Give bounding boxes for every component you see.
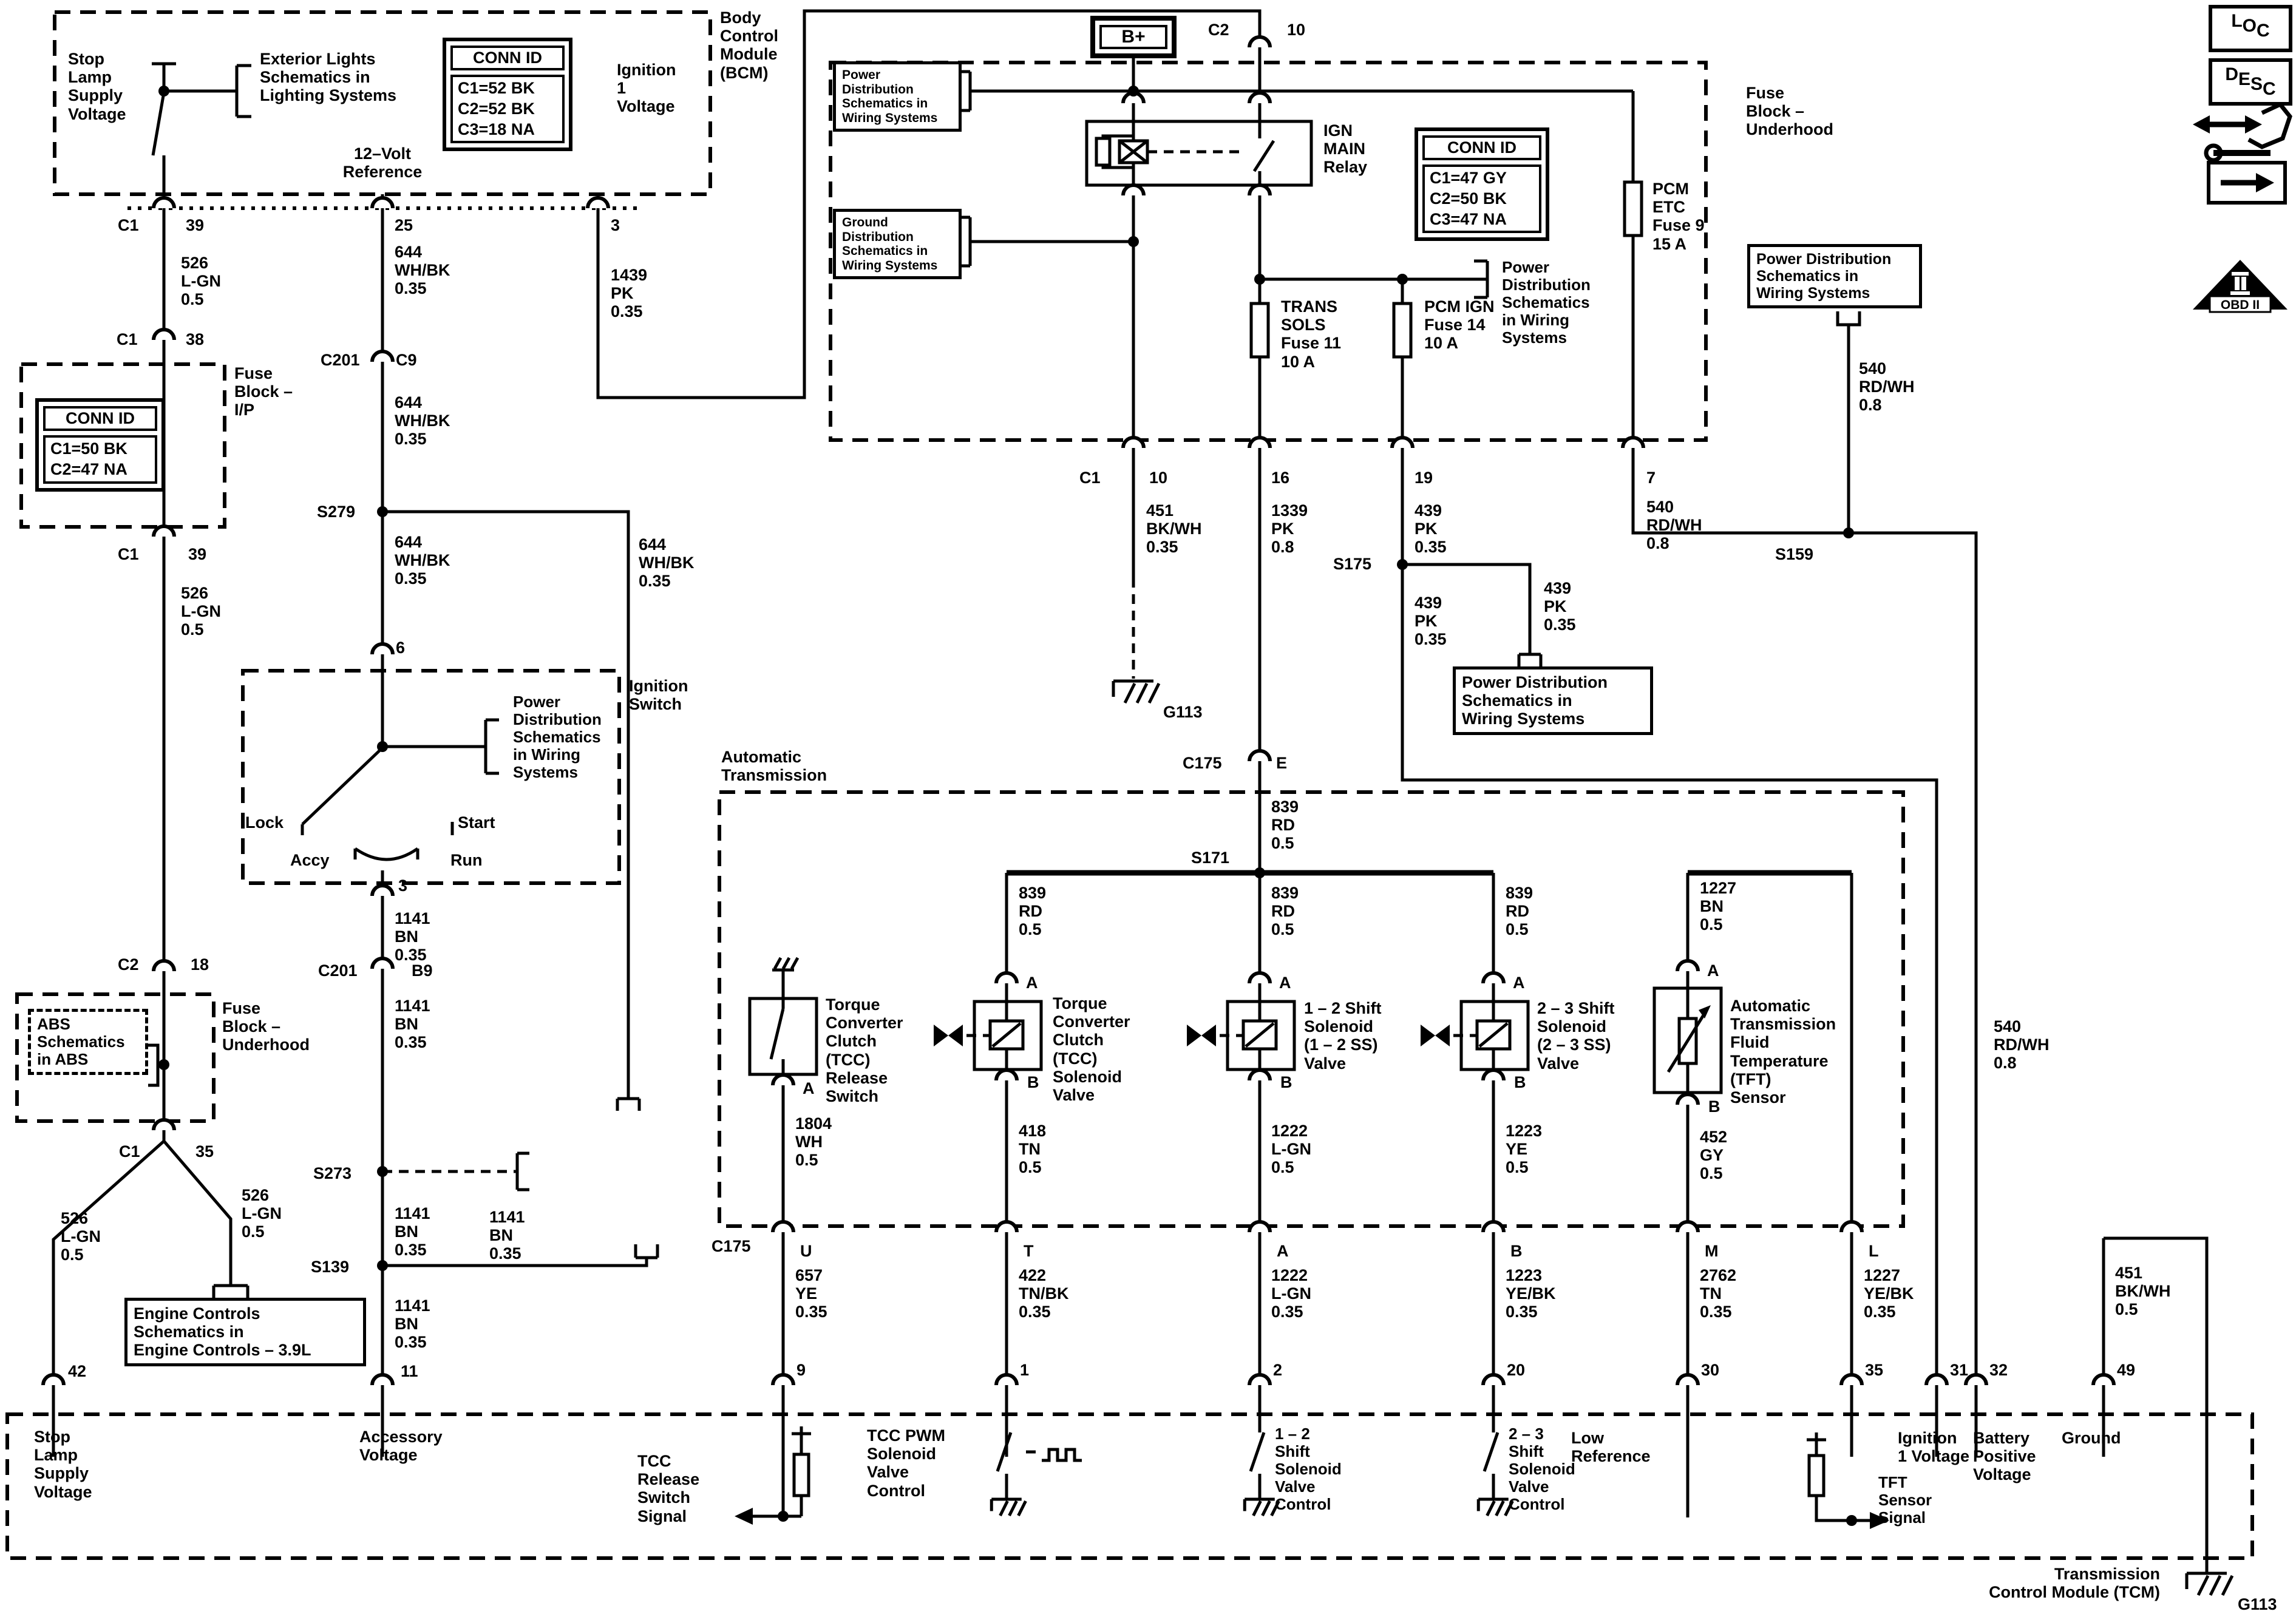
connector-bump	[372, 958, 393, 969]
obd2-icon[interactable]: OBD II	[2193, 260, 2288, 312]
ign-run: Run	[450, 851, 482, 869]
wire-2762: 2762 TN 0.35	[1700, 1266, 1736, 1321]
stop-lamp-supply-tcm: Stop Lamp Supply Voltage	[34, 1428, 92, 1501]
connector-bump	[1677, 1222, 1698, 1232]
splice-s279: S279	[317, 503, 355, 521]
connector-bump	[1677, 961, 1698, 971]
ign-start: Start	[458, 813, 495, 832]
wire-526-d: 526 L-GN 0.5	[242, 1186, 282, 1241]
tcm-resistor-1	[794, 1454, 809, 1496]
conn-id-bcm-rows: C1=52 BK C2=52 BK C3=18 NA	[450, 75, 565, 143]
tcc-signal-arrow	[735, 1508, 753, 1525]
wire-1222-b: 1222 L-GN 0.35	[1271, 1266, 1311, 1321]
pd-ref-s175: Power Distribution Schematics in Wiring …	[1453, 666, 1653, 735]
tcc-release-switch: Torque Converter Clutch (TCC) Release Sw…	[826, 995, 903, 1105]
wire-526-b: 526 L-GN 0.5	[181, 584, 221, 639]
shift-23-valve: 2 – 3 Shift Solenoid (2 – 3 SS) Valve	[1537, 999, 1615, 1073]
connector-bump	[1841, 1222, 1862, 1232]
automatic-transmission: Automatic Transmission	[721, 748, 827, 784]
bplus-label: B+	[1121, 27, 1145, 47]
stop-lamp-supply-bcm: Stop Lamp Supply Voltage	[68, 50, 126, 123]
pin-b9: B9	[412, 961, 433, 980]
wiring-diagram: OBD II B+ LOC DESC Body Control Module (…	[0, 0, 2296, 1617]
splice-dot	[778, 1511, 789, 1522]
wire-839-a: 839 RD 0.5	[1271, 798, 1299, 853]
pin-e: E	[1276, 754, 1287, 772]
conn-id-ip-title: CONN ID	[43, 406, 157, 431]
wire-540-c: 540 RD/WH 0.8	[1994, 1017, 2049, 1073]
ground-symbol	[991, 1499, 1025, 1516]
trans-sols-fuse: TRANS SOLS Fuse 11 10 A	[1281, 297, 1341, 371]
ign-main-relay: IGN MAIN Relay	[1323, 121, 1367, 177]
connector-bump	[372, 1375, 393, 1385]
pin-38: 38	[186, 330, 204, 348]
splice-dot	[377, 1260, 388, 1271]
pin-25: 25	[395, 216, 413, 234]
splice-s171: S171	[1191, 849, 1229, 867]
ignition-power-circuit	[598, 11, 1976, 1457]
wire-1339: 1339 PK 0.8	[1271, 501, 1308, 557]
wire-439-b: 439 PK 0.35	[1415, 594, 1447, 649]
conn-id-ip: CONN IDC1=50 BK C2=47 NA	[35, 398, 165, 492]
abs-ref: ABS Schematics in ABS	[28, 1009, 148, 1075]
wire-1141-c: 1141 BN 0.35	[395, 1204, 430, 1259]
wire-1223-b: 1223 YE/BK 0.35	[1506, 1266, 1556, 1321]
conn-id-ip-rows: C1=50 BK C2=47 NA	[43, 435, 157, 484]
connector-bump	[1249, 185, 1270, 195]
pin-42: 42	[68, 1362, 86, 1380]
splice-s273: S273	[313, 1164, 352, 1182]
tft-sensor-signal: TFT Sensor Signal	[1878, 1474, 1932, 1527]
connector-bump	[154, 1120, 174, 1130]
pin-7: 7	[1646, 469, 1656, 487]
arrow-icon[interactable]	[2209, 163, 2285, 203]
connector-bump	[372, 886, 393, 896]
pin-a-bot: A	[1277, 1242, 1289, 1260]
connector-bump	[1483, 1222, 1504, 1232]
pin-11: 11	[401, 1362, 418, 1380]
fuse-block-underhood-big: Fuse Block – Underhood	[1746, 84, 1833, 139]
connector-bump	[1483, 973, 1504, 983]
pin-c1-10: C1	[1079, 469, 1101, 487]
connector-bump	[996, 1222, 1017, 1232]
wire-418: 418 TN 0.5	[1019, 1122, 1046, 1177]
wire-657: 657 YE 0.35	[795, 1266, 827, 1321]
conn-id-underhood: CONN IDC1=47 GY C2=50 BK C3=47 NA	[1415, 127, 1549, 241]
pin-c1-39b: C1	[118, 545, 139, 563]
pin-3-ign: 3	[398, 876, 407, 895]
pcm-etc-fuse-symbol	[1625, 182, 1642, 236]
exterior-lights-ref: Exterior Lights Schematics in Lighting S…	[260, 50, 396, 105]
low-reference: Low Reference	[1571, 1429, 1651, 1465]
pin-c9: C9	[396, 351, 417, 369]
connector-bump	[1677, 1375, 1698, 1385]
pin-c1-top: C1	[118, 216, 139, 234]
pcm-ign-fuse: PCM IGN Fuse 14 10 A	[1424, 297, 1495, 353]
connector-bump	[773, 1075, 793, 1085]
connector-bump	[1249, 37, 1270, 47]
pin-c2-18: C2	[118, 955, 139, 974]
ignition-1-voltage-tcm: Ignition 1 Voltage	[1898, 1429, 1969, 1465]
splice-s159: S159	[1775, 545, 1813, 563]
ground-g113-a: G113	[1163, 703, 1203, 721]
ground-g113-b: G113	[2238, 1595, 2277, 1613]
splice-dot	[1846, 1515, 1857, 1526]
connector-bump	[154, 330, 174, 340]
pd-ref-s159: Power Distribution Schematics in Wiring …	[1747, 244, 1922, 308]
ignition-switch-title: Ignition Switch	[629, 677, 688, 713]
splice-dot	[1843, 527, 1854, 538]
connector-bump	[372, 644, 393, 654]
ign-lock: Lock	[245, 813, 284, 832]
ground-tcm: Ground	[2062, 1429, 2121, 1447]
connector-bump	[1841, 1375, 1862, 1385]
pin-10-b: 10	[1149, 469, 1167, 487]
tcm-pin-31: 31	[1950, 1361, 1968, 1379]
valve-symbol	[948, 1025, 963, 1046]
pin-b-ss12: B	[1280, 1073, 1292, 1091]
connector-bump	[43, 1375, 64, 1385]
fuse-block-ip: Fuse Block – I/P	[234, 364, 293, 419]
desc-icon[interactable]: DESC	[2209, 58, 2292, 106]
wire-1141-a: 1141 BN 0.35	[395, 909, 430, 964]
wire-526-c: 526 L-GN 0.5	[61, 1209, 101, 1264]
wire-540-b: 540 RD/WH 0.8	[1859, 359, 1914, 415]
valve-symbol	[1187, 1025, 1201, 1046]
loc-icon[interactable]: LOC	[2209, 5, 2292, 52]
splice-dot	[377, 1166, 388, 1177]
engine-controls-ref: Engine Controls Schematics in Engine Con…	[124, 1298, 366, 1366]
wire-839-c: 839 RD 0.5	[1271, 884, 1299, 939]
connector-bump	[1249, 1375, 1270, 1385]
tcm-pin-49: 49	[2117, 1361, 2135, 1379]
pcm-ign-fuse-symbol	[1394, 303, 1411, 357]
connector-bump	[1249, 973, 1270, 983]
connector-bump	[996, 973, 1017, 983]
wire-452: 452 GY 0.5	[1700, 1128, 1727, 1183]
tcm-pin-2: 2	[1273, 1361, 1282, 1379]
wire-540-a: 540 RD/WH 0.8	[1646, 498, 1702, 553]
pin-6: 6	[396, 639, 405, 657]
wire-451-b: 451 BK/WH 0.5	[2115, 1264, 2170, 1319]
pin-t: T	[1024, 1242, 1034, 1260]
connector-bump	[773, 1375, 793, 1385]
wire-439-a: 439 PK 0.35	[1415, 501, 1447, 557]
pin-b-tft: B	[1708, 1097, 1720, 1116]
connector-bump	[1123, 438, 1144, 448]
valve-symbol	[1435, 1025, 1450, 1046]
wire-1141-e: 1141 BN 0.35	[395, 1297, 430, 1352]
connector-bump	[372, 198, 393, 208]
wire-644-a: 644 WH/BK 0.35	[395, 243, 450, 298]
pin-a-tcc-sol: A	[1026, 974, 1038, 992]
tcm-pin-20: 20	[1507, 1361, 1525, 1379]
pin-a-tcc-sw: A	[803, 1079, 815, 1097]
splice-dot	[1254, 274, 1265, 285]
valve-symbol	[934, 1025, 948, 1046]
pin-3-bcm: 3	[611, 216, 620, 234]
connector-bump	[372, 351, 393, 362]
pd-ref-top: Power Distribution Schematics in Wiring …	[833, 61, 962, 132]
splice-dot	[1254, 867, 1265, 878]
connector-bump	[2093, 1375, 2114, 1385]
splice-dot	[158, 1059, 169, 1070]
wire-451-a: 451 BK/WH 0.35	[1146, 501, 1201, 557]
conn-c175-e: C175	[1183, 754, 1222, 772]
relay-coil-resistor	[1096, 138, 1110, 165]
wire-1439: 1439 PK 0.35	[611, 266, 647, 321]
connector-bump	[1249, 1070, 1270, 1080]
connector-bump	[1123, 185, 1144, 195]
connector-bump	[1249, 438, 1270, 448]
tcm-title: Transmission Control Module (TCM)	[1870, 1565, 2160, 1601]
pin-a-tft: A	[1707, 961, 1719, 980]
pin-b-bot: B	[1510, 1242, 1523, 1260]
connector-bump	[1483, 1375, 1504, 1385]
wire-839-d: 839 RD 0.5	[1506, 884, 1533, 939]
accessory-voltage: Accessory Voltage	[359, 1428, 443, 1464]
tft-sensor: Automatic Transmission Fluid Temperature…	[1730, 997, 1836, 1107]
conn-id-underhood-rows: C1=47 GY C2=50 BK C3=47 NA	[1422, 164, 1541, 233]
pin-b-ss23: B	[1514, 1073, 1526, 1091]
connector-bump	[996, 1375, 1017, 1385]
connector-bump	[154, 961, 174, 971]
splice-dot	[1397, 559, 1408, 570]
wire-1227-a: 1227 BN 0.5	[1700, 879, 1736, 934]
pin-18: 18	[191, 955, 209, 974]
conn-id-bcm-title: CONN ID	[450, 46, 565, 70]
wire-1141-d: 1141 BN 0.35	[489, 1208, 525, 1263]
wire-1223-a: 1223 YE 0.5	[1506, 1122, 1542, 1177]
wire-1227-b: 1227 YE/BK 0.35	[1864, 1266, 1914, 1321]
pin-c1-38a: C1	[117, 330, 138, 348]
connector-bump	[1249, 1222, 1270, 1232]
pin-35-conn: 35	[195, 1142, 214, 1161]
wire-1804: 1804 WH 0.5	[795, 1114, 832, 1170]
pd-ref-ignition: Power Distribution Schematics in Wiring …	[513, 693, 602, 782]
connector-bump	[588, 198, 608, 208]
pin-39-top: 39	[186, 216, 204, 234]
twelve-volt-reference: 12–Volt Reference	[343, 144, 423, 181]
ground-symbol	[1245, 1499, 1279, 1516]
wire-644-b: 644 WH/BK 0.35	[395, 393, 450, 449]
ground-symbol	[1113, 681, 1159, 703]
splice-dot	[1397, 274, 1408, 285]
splice-s175: S175	[1333, 555, 1371, 573]
shift-12-valve: 1 – 2 Shift Solenoid (1 – 2 SS) Valve	[1304, 999, 1382, 1073]
splice-dot	[158, 86, 169, 97]
wire-526-a: 526 L-GN 0.5	[181, 254, 221, 309]
fuse-block-underhood-box	[830, 63, 1706, 440]
connector-bump	[154, 198, 174, 208]
pin-a-ss12: A	[1279, 974, 1291, 992]
connector-bump	[1392, 438, 1413, 448]
ground-symbol	[2187, 1573, 2232, 1595]
tcm-pin-1: 1	[1020, 1361, 1029, 1379]
splice-dot	[1128, 236, 1139, 247]
pointer-wrench-icon[interactable]	[2193, 104, 2290, 160]
connector-bump	[154, 526, 174, 537]
obd2-label: OBD II	[2221, 298, 2260, 312]
ign-accy: Accy	[290, 851, 330, 869]
pin-m: M	[1705, 1242, 1719, 1260]
tcc-pwm-control: TCC PWM Solenoid Valve Control	[867, 1426, 945, 1500]
pin-b-tcc-sol: B	[1027, 1073, 1039, 1091]
tcm-pin-30: 30	[1701, 1361, 1719, 1379]
trans-sols-fuse-symbol	[1251, 303, 1268, 357]
connector-bump	[996, 1070, 1017, 1080]
shift-23-control: 2 – 3 Shift Solenoid Valve Control	[1509, 1425, 1575, 1514]
connector-bump	[1249, 93, 1270, 103]
tcm-pin-9: 9	[796, 1361, 806, 1379]
pin-c2-10: C2	[1208, 21, 1229, 39]
tcm-resistor-2	[1809, 1456, 1824, 1496]
ground-symbol	[1478, 1499, 1512, 1516]
conn-id-bcm: CONN IDC1=52 BK C2=52 BK C3=18 NA	[443, 38, 572, 151]
connector-bump	[1483, 1070, 1504, 1080]
connector-bump	[1966, 1375, 1986, 1385]
tcm-pin-32: 32	[1989, 1361, 2008, 1379]
connector-bump	[1623, 438, 1643, 448]
battery-positive: Battery Positive Voltage	[1973, 1429, 2036, 1484]
wire-422: 422 TN/BK 0.35	[1019, 1266, 1069, 1321]
wire-839-b: 839 RD 0.5	[1019, 884, 1046, 939]
pin-a-ss23: A	[1513, 974, 1525, 992]
connector-bump	[1677, 1094, 1698, 1105]
wire-1141-b: 1141 BN 0.35	[395, 997, 430, 1052]
valve-symbol	[1421, 1025, 1435, 1046]
connector-bump	[773, 1222, 793, 1232]
tft-arrowhead	[1699, 1005, 1711, 1019]
valve-symbol	[1201, 1025, 1216, 1046]
splice-dot	[377, 506, 388, 517]
conn-id-underhood-title: CONN ID	[1422, 135, 1541, 160]
shift-12-control: 1 – 2 Shift Solenoid Valve Control	[1275, 1425, 1342, 1514]
conn-c175-bottom: C175	[712, 1237, 751, 1255]
bcm-title: Body Control Module (BCM)	[720, 8, 778, 82]
wire-644-d: 644 WH/BK 0.35	[639, 535, 694, 591]
tcc-release-signal: TCC Release Switch Signal	[637, 1452, 699, 1525]
splice-dot	[1128, 86, 1139, 97]
splice-s139: S139	[311, 1258, 349, 1276]
fuse-block-underhood-small: Fuse Block – Underhood	[222, 999, 310, 1054]
pcm-etc-fuse: PCM ETC Fuse 9 15 A	[1652, 180, 1705, 253]
splice-dot	[377, 741, 388, 752]
pin-19: 19	[1415, 469, 1433, 487]
pin-10-a: 10	[1287, 21, 1305, 39]
connector-bump	[1249, 751, 1270, 761]
pd-ref-relay: Power Distribution Schematics in Wiring …	[1502, 259, 1591, 347]
pin-16: 16	[1271, 469, 1289, 487]
connector-bump	[1926, 1375, 1947, 1385]
pin-c1-35: C1	[119, 1142, 140, 1161]
gnd-ref: Ground Distribution Schematics in Wiring…	[833, 209, 962, 279]
wire-1222-a: 1222 L-GN 0.5	[1271, 1122, 1311, 1177]
pin-39-b: 39	[188, 545, 206, 563]
tcc-solenoid-valve: Torque Converter Clutch (TCC) Solenoid V…	[1053, 994, 1130, 1104]
conn-c201-b: C201	[318, 961, 358, 980]
tcm-pin-35: 35	[1865, 1361, 1883, 1379]
wire-439-c: 439 PK 0.35	[1544, 579, 1576, 634]
conn-c201-a: C201	[321, 351, 360, 369]
pin-u: U	[800, 1242, 812, 1260]
nav-icons: OBD II	[2193, 104, 2290, 312]
pin-l: L	[1869, 1242, 1879, 1260]
wire-644-c: 644 WH/BK 0.35	[395, 533, 450, 588]
ignition-1-voltage-bcm: Ignition 1 Voltage	[617, 61, 676, 116]
